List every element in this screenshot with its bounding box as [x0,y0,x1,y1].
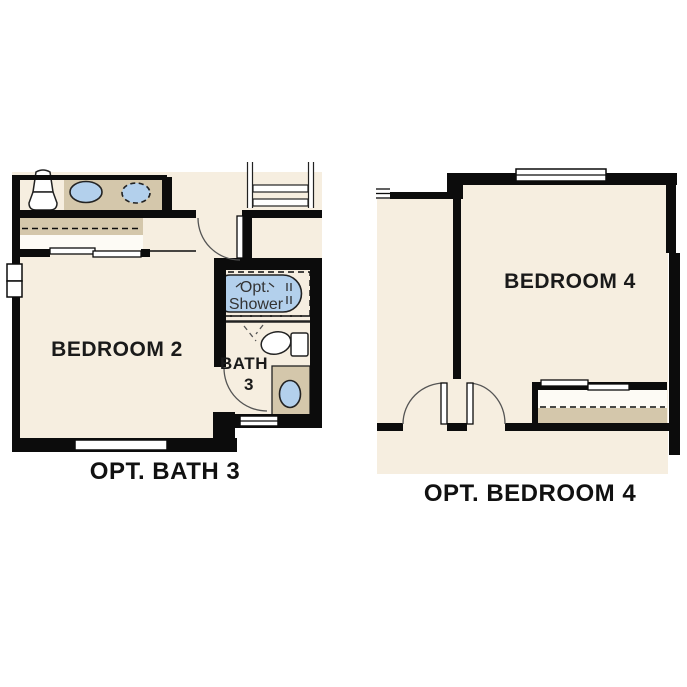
bedroom4-label: BEDROOM 4 [504,270,636,293]
left-floor-plan: Opt. Shower [7,162,322,485]
vanity-sink [280,381,301,408]
window [516,169,606,181]
bedroom4-floor [377,199,668,474]
door-leaf [467,383,473,424]
toilet-tank [33,170,53,192]
door-leaf [237,216,243,258]
window [240,416,278,426]
stair-tread [253,199,308,206]
stairs-icon [247,162,314,208]
toilet-bowl [29,192,57,210]
closet-shelf [20,218,143,250]
closet-sliding-door [541,380,588,386]
closet-shelf [538,390,667,423]
bedroom2-label: BEDROOM 2 [51,338,183,361]
sink-icon [70,182,102,203]
closet-sliding-door [50,248,95,254]
optional-sink-icon [122,183,150,203]
right-floor-plan: BEDROOM 4 OPT. BEDROOM 4 [376,169,680,507]
closet-sliding-door [93,251,141,257]
window [7,264,22,297]
bath3-label-line1: BATH [220,354,268,373]
closet-interior [538,390,667,408]
opt-shower-label-line1: Opt. [240,279,270,296]
bedroom4-floor-strip [461,185,667,199]
stair-tread [253,185,308,192]
window [75,440,167,450]
left-plan-title: OPT. BATH 3 [90,458,240,485]
toilet-tank [291,333,308,356]
floor-plan-canvas: Opt. Shower [0,0,687,687]
opt-shower-label-line2: Shower [229,296,284,313]
vanity-icon [272,366,310,418]
closet-shelf-top [20,218,143,235]
wall-cut-symbol [376,188,390,199]
right-plan-title: OPT. BEDROOM 4 [424,480,637,507]
floor-plan-svg: Opt. Shower [0,0,687,687]
closet-shelf-strip [538,408,667,423]
floor-cutout [235,428,322,452]
bath3-label-line2: 3 [244,375,254,394]
door-leaf [441,383,447,424]
closet-sliding-door [588,384,629,390]
